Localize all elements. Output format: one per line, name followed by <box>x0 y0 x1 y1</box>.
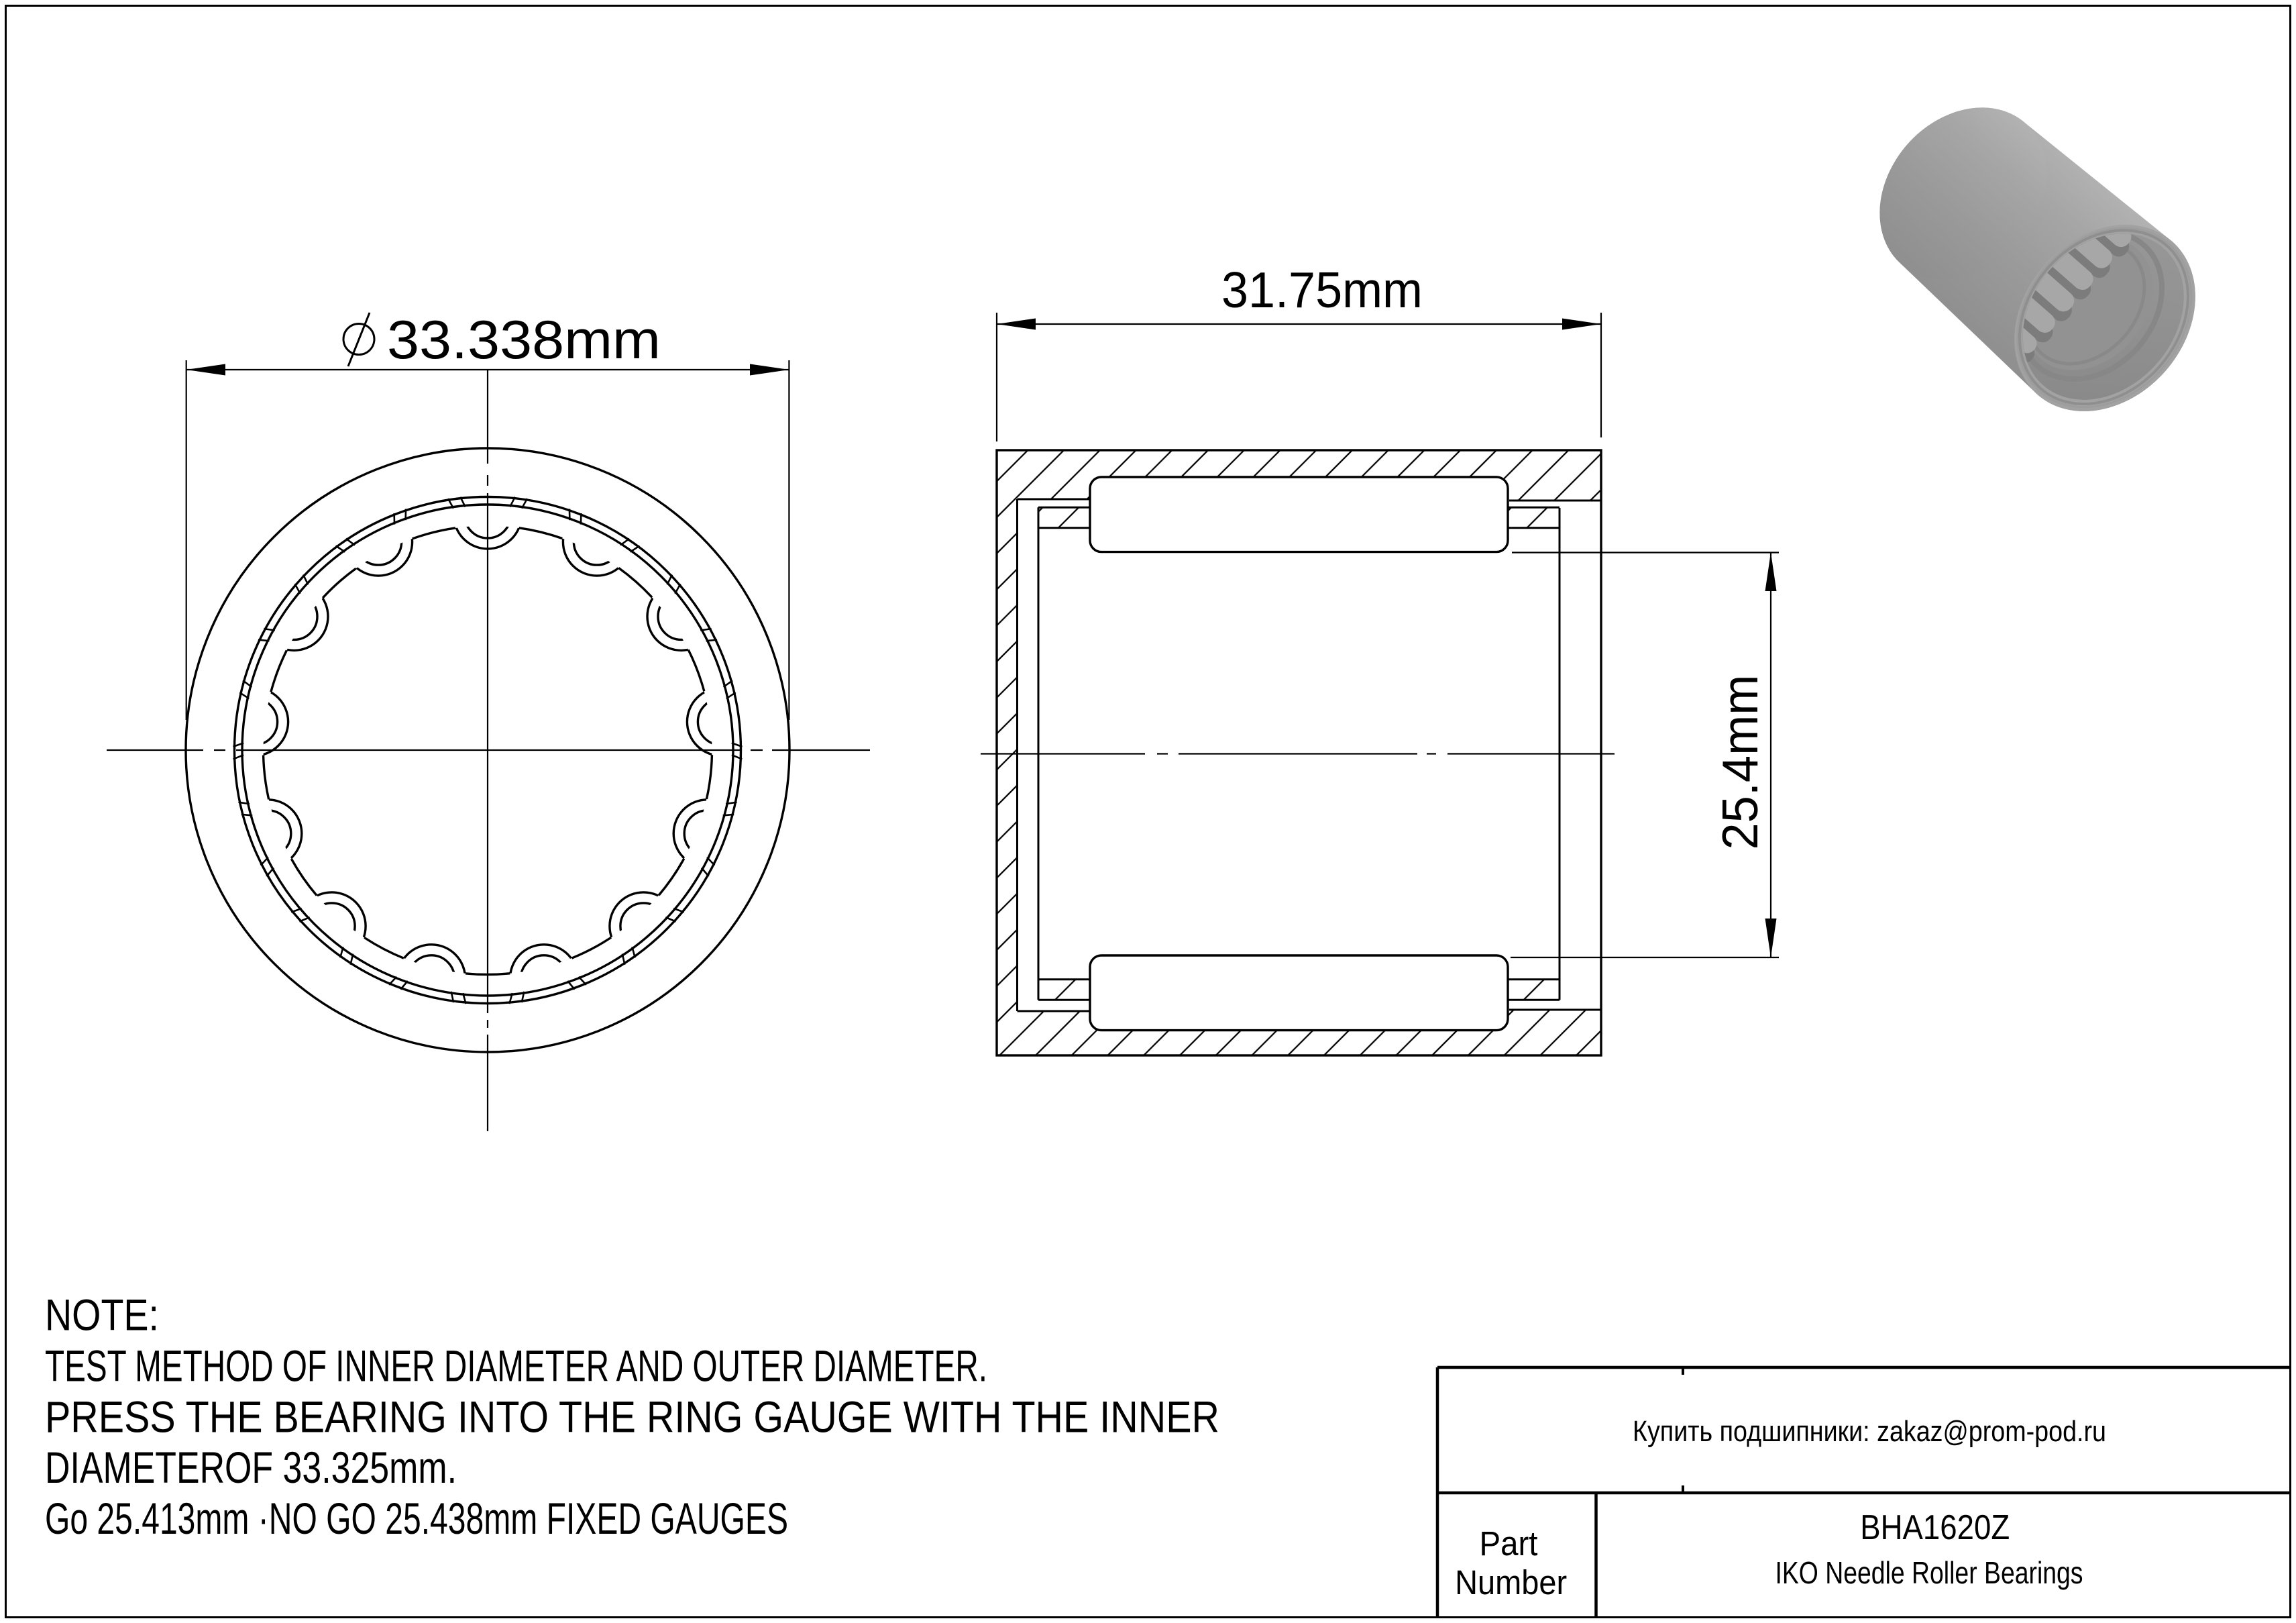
svg-text:TEST METHOD OF INNER DIAMETER: TEST METHOD OF INNER DIAMETER AND OUTER … <box>45 1341 987 1391</box>
svg-text:BHA1620Z: BHA1620Z <box>1860 1508 2010 1547</box>
svg-text:Go 25.413mm ·NO GO 25.438mm FI: Go 25.413mm ·NO GO 25.438mm FIXED GAUGES <box>45 1494 788 1543</box>
svg-text:Купить подшипники: zakaz@prom-: Купить подшипники: zakaz@prom-pod.ru <box>1633 1415 2106 1448</box>
svg-text:DIAMETEROF 33.325mm.: DIAMETEROF 33.325mm. <box>45 1443 457 1492</box>
svg-text:Number: Number <box>1455 1563 1567 1602</box>
svg-text:Part: Part <box>1480 1524 1538 1563</box>
svg-text:NOTE:: NOTE: <box>45 1290 159 1340</box>
svg-text:33.338mm: 33.338mm <box>387 310 661 370</box>
svg-text:IKO Needle Roller Bearings: IKO Needle Roller Bearings <box>1775 1555 2083 1590</box>
svg-text:25.4mm: 25.4mm <box>1712 675 1768 850</box>
svg-text:31.75mm: 31.75mm <box>1221 262 1423 318</box>
svg-text:PRESS THE BEARING INTO THE RIN: PRESS THE BEARING INTO THE RING GAUGE WI… <box>45 1392 1219 1441</box>
